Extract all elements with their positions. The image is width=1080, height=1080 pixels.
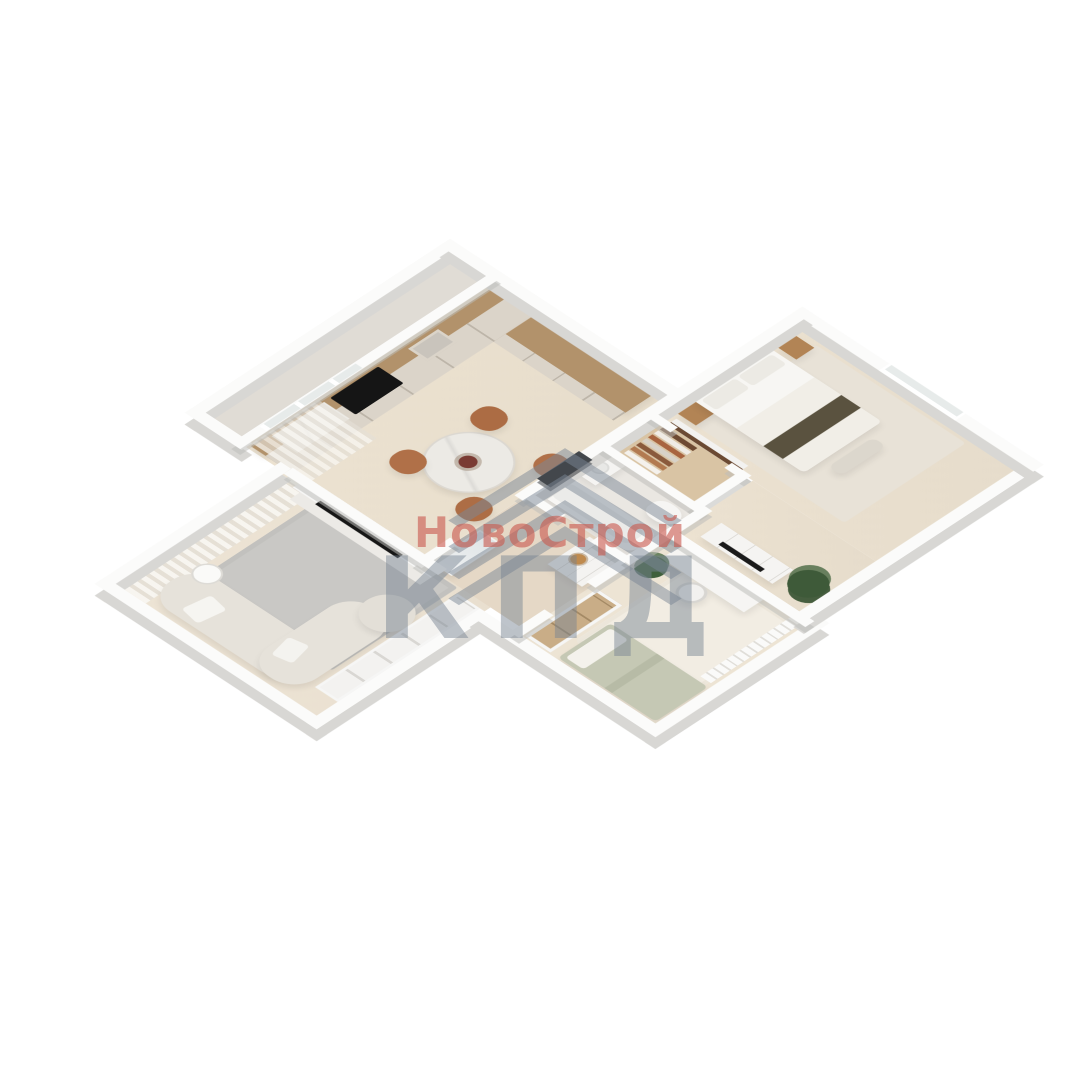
isometric-apartment-scene <box>0 155 1080 873</box>
floorplan-render: НовоСтрой КПД <box>0 0 1080 1080</box>
